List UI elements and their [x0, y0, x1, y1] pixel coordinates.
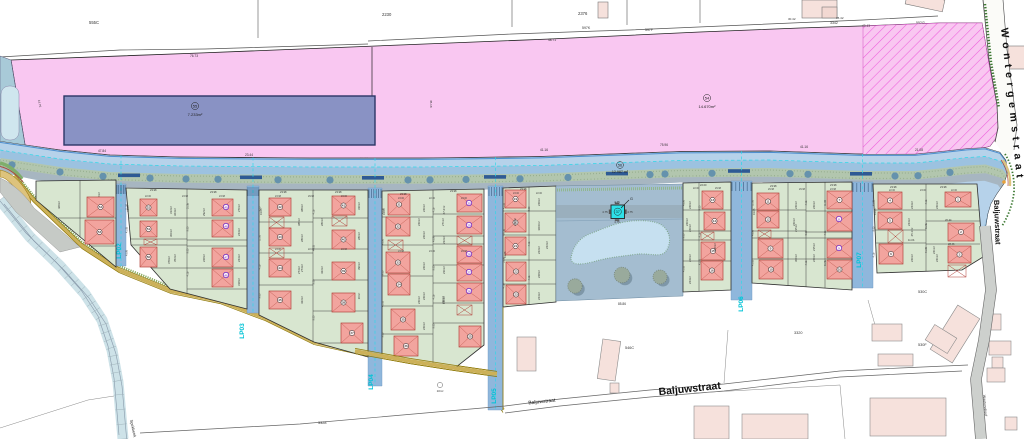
- svg-text:597K: 597K: [582, 26, 591, 30]
- svg-text:390m²: 390m²: [357, 262, 361, 270]
- svg-text:306m²: 306m²: [794, 254, 798, 262]
- svg-text:23.44: 23.44: [245, 153, 253, 157]
- svg-text:40.98: 40.98: [433, 235, 436, 242]
- svg-text:35.42: 35.42: [836, 16, 844, 20]
- svg-text:530C: 530C: [918, 290, 927, 294]
- svg-text:11: 11: [766, 200, 769, 204]
- svg-text:9.00: 9.00: [187, 248, 190, 253]
- svg-text:246m²: 246m²: [812, 254, 816, 262]
- svg-text:LP03: LP03: [239, 323, 246, 339]
- svg-text:19: 19: [514, 197, 518, 201]
- svg-text:41.05: 41.05: [503, 251, 507, 258]
- svg-text:37: 37: [350, 331, 354, 335]
- svg-text:50: 50: [147, 255, 151, 259]
- svg-text:5: 5: [889, 219, 891, 223]
- svg-text:246m²: 246m²: [422, 262, 426, 270]
- svg-text:236m²: 236m²: [442, 266, 446, 274]
- svg-text:4.75: 4.75: [602, 210, 608, 214]
- svg-text:246m²: 246m²: [935, 201, 939, 209]
- svg-text:G: G: [630, 197, 633, 201]
- svg-text:22.00: 22.00: [429, 197, 436, 200]
- svg-text:292m²: 292m²: [202, 208, 206, 216]
- svg-text:52: 52: [147, 206, 151, 210]
- svg-text:23.98: 23.98: [450, 189, 457, 193]
- svg-text:25.1m²: 25.1m²: [910, 228, 914, 237]
- svg-text:6: 6: [890, 252, 892, 256]
- svg-text:23.98: 23.98: [520, 187, 527, 191]
- svg-text:29.98: 29.98: [715, 187, 722, 190]
- svg-text:27.4m²: 27.4m²: [442, 206, 446, 215]
- svg-text:41.05: 41.05: [126, 226, 129, 233]
- svg-text:9.00: 9.00: [313, 315, 316, 320]
- svg-text:433m²: 433m²: [320, 266, 324, 274]
- svg-text:85.86: 85.86: [618, 302, 626, 306]
- svg-text:23: 23: [514, 293, 518, 297]
- svg-text:16: 16: [710, 269, 714, 273]
- svg-text:246m²: 246m²: [812, 201, 816, 209]
- svg-text:43: 43: [278, 235, 282, 239]
- svg-text:23.98: 23.98: [830, 183, 837, 187]
- svg-text:14.670m²: 14.670m²: [699, 104, 717, 109]
- svg-text:30.42: 30.42: [788, 17, 796, 21]
- svg-text:31: 31: [397, 203, 401, 207]
- svg-text:23.98: 23.98: [210, 190, 217, 194]
- svg-text:240m²: 240m²: [685, 218, 689, 226]
- svg-text:41.05: 41.05: [382, 300, 385, 307]
- svg-text:11.00: 11.00: [259, 234, 262, 240]
- svg-text:14: 14: [713, 219, 717, 223]
- svg-text:9.00: 9.00: [873, 226, 876, 231]
- svg-text:49.43: 49.43: [862, 24, 870, 28]
- svg-text:40.98: 40.98: [126, 249, 129, 256]
- svg-text:4.75: 4.75: [614, 200, 620, 204]
- svg-text:364m²: 364m²: [173, 208, 177, 216]
- svg-text:LP07: LP07: [856, 252, 863, 268]
- svg-text:46: 46: [224, 273, 228, 277]
- svg-text:23.00: 23.00: [398, 197, 405, 200]
- svg-text:223m²: 223m²: [537, 246, 541, 254]
- svg-text:246m²: 246m²: [792, 218, 796, 226]
- svg-text:246m²: 246m²: [422, 204, 426, 212]
- svg-text:22.00: 22.00: [889, 189, 896, 192]
- svg-text:29.98: 29.98: [461, 250, 468, 253]
- svg-text:20.44: 20.44: [945, 218, 952, 222]
- svg-text:4.1b: 4.1b: [433, 207, 436, 212]
- svg-text:54: 54: [705, 96, 710, 101]
- svg-text:23.98: 23.98: [400, 192, 407, 196]
- svg-text:23.98: 23.98: [182, 195, 189, 198]
- svg-text:233m²: 233m²: [442, 236, 446, 244]
- svg-text:25: 25: [468, 335, 472, 339]
- svg-text:244m²: 244m²: [910, 201, 914, 209]
- svg-text:220m²: 220m²: [713, 243, 717, 251]
- svg-text:41: 41: [342, 204, 346, 208]
- svg-text:4.1b: 4.1b: [805, 200, 808, 205]
- svg-text:23.98: 23.98: [275, 195, 282, 198]
- svg-text:41.05: 41.05: [873, 199, 876, 206]
- svg-text:32: 32: [396, 225, 400, 229]
- svg-text:38: 38: [342, 301, 346, 305]
- svg-text:4.1b: 4.1b: [699, 232, 702, 237]
- svg-text:29.98: 29.98: [799, 188, 806, 191]
- svg-text:246m²: 246m²: [422, 292, 426, 300]
- svg-text:246m²: 246m²: [794, 201, 798, 209]
- svg-text:22.00: 22.00: [693, 187, 700, 190]
- svg-text:9.00: 9.00: [382, 332, 385, 337]
- svg-text:11.00: 11.00: [824, 199, 827, 205]
- svg-text:286m²: 286m²: [357, 232, 361, 240]
- svg-text:23.98: 23.98: [341, 248, 348, 251]
- svg-text:23.00: 23.00: [341, 195, 348, 198]
- svg-text:23.00: 23.00: [275, 248, 282, 251]
- svg-text:215m²: 215m²: [812, 243, 816, 251]
- svg-text:555C: 555C: [89, 20, 99, 25]
- svg-text:39: 39: [342, 269, 346, 273]
- svg-text:28: 28: [467, 252, 471, 256]
- svg-text:286m²: 286m²: [300, 234, 304, 242]
- svg-text:47: 47: [224, 255, 228, 259]
- svg-text:9.00: 9.00: [382, 270, 385, 275]
- svg-text:330m²: 330m²: [357, 202, 361, 210]
- svg-text:11.00: 11.00: [752, 199, 755, 205]
- svg-text:40.98: 40.98: [752, 229, 755, 236]
- svg-text:31.5b: 31.5b: [824, 259, 827, 266]
- svg-text:4.1b: 4.1b: [528, 241, 531, 246]
- svg-text:37: 37: [616, 210, 620, 214]
- svg-text:40.98: 40.98: [683, 199, 686, 206]
- svg-text:23.98: 23.98: [398, 250, 405, 253]
- svg-text:44: 44: [278, 266, 282, 270]
- svg-text:270m²: 270m²: [237, 204, 241, 212]
- svg-text:23.98: 23.98: [830, 188, 837, 191]
- svg-text:9.00: 9.00: [683, 233, 686, 238]
- svg-text:41.16: 41.16: [800, 145, 808, 149]
- svg-text:228m²: 228m²: [202, 254, 206, 262]
- svg-text:4: 4: [889, 199, 891, 203]
- svg-text:76.73: 76.73: [190, 54, 198, 58]
- svg-text:56: 56: [618, 164, 622, 168]
- svg-text:41.05: 41.05: [752, 208, 756, 215]
- svg-text:4.1b: 4.1b: [313, 209, 316, 214]
- svg-text:26: 26: [467, 289, 471, 293]
- svg-text:LP02: LP02: [116, 243, 123, 259]
- svg-text:241m²: 241m²: [932, 246, 936, 254]
- svg-text:13: 13: [711, 198, 715, 202]
- svg-text:30m²: 30m²: [357, 293, 361, 299]
- svg-text:2: 2: [960, 230, 962, 234]
- svg-text:228m²: 228m²: [537, 270, 541, 278]
- svg-text:33: 33: [396, 261, 400, 265]
- svg-text:48.71: 48.71: [548, 38, 556, 42]
- svg-text:4.1b: 4.1b: [824, 230, 827, 235]
- svg-text:31.5b: 31.5b: [503, 256, 506, 263]
- svg-text:241m²: 241m²: [935, 254, 939, 262]
- svg-text:10m²: 10m²: [437, 389, 444, 393]
- svg-text:23.00: 23.00: [513, 192, 520, 195]
- svg-text:47.84: 47.84: [98, 149, 106, 153]
- svg-text:36: 36: [404, 344, 408, 348]
- svg-text:41.05: 41.05: [873, 208, 877, 215]
- svg-text:27: 27: [467, 270, 471, 274]
- svg-text:4.1b: 4.1b: [259, 264, 262, 269]
- svg-text:42: 42: [278, 205, 282, 209]
- svg-text:246m²: 246m²: [422, 322, 426, 330]
- svg-text:54: 54: [99, 205, 103, 209]
- svg-text:4.1b: 4.1b: [805, 260, 808, 265]
- svg-text:7: 7: [839, 198, 841, 202]
- svg-text:389m²: 389m²: [300, 204, 304, 212]
- svg-text:9.00: 9.00: [699, 205, 702, 210]
- svg-text:246m²: 246m²: [422, 231, 426, 239]
- svg-text:40.98: 40.98: [382, 238, 385, 245]
- svg-text:31.5b: 31.5b: [503, 228, 506, 235]
- svg-text:23.98: 23.98: [219, 195, 226, 198]
- svg-text:49: 49: [224, 205, 228, 209]
- svg-text:469m²: 469m²: [57, 201, 61, 209]
- svg-text:4.1b: 4.1b: [503, 283, 506, 288]
- svg-text:23.00: 23.00: [429, 250, 436, 253]
- svg-text:4.75: 4.75: [614, 220, 620, 224]
- svg-text:9.00: 9.00: [313, 279, 316, 284]
- svg-text:23.98: 23.98: [280, 190, 287, 194]
- svg-text:40.98: 40.98: [382, 207, 385, 214]
- svg-text:41.05: 41.05: [925, 246, 928, 253]
- svg-text:41.05: 41.05: [699, 258, 702, 265]
- svg-text:29.98: 29.98: [768, 188, 775, 191]
- svg-text:LP06: LP06: [738, 296, 745, 312]
- svg-text:353m²: 353m²: [173, 254, 177, 262]
- svg-text:9.00: 9.00: [259, 206, 262, 211]
- svg-text:224m²: 224m²: [688, 276, 692, 284]
- svg-text:22.00: 22.00: [308, 248, 315, 251]
- svg-text:4.1b: 4.1b: [528, 275, 531, 280]
- svg-text:3342: 3342: [830, 21, 838, 25]
- svg-text:21: 21: [514, 244, 518, 248]
- svg-text:244m²: 244m²: [237, 228, 241, 236]
- svg-text:22.00: 22.00: [700, 183, 707, 187]
- svg-text:35: 35: [401, 318, 405, 322]
- svg-text:249m²: 249m²: [513, 218, 517, 226]
- svg-text:246m²: 246m²: [417, 218, 421, 226]
- svg-text:318m²: 318m²: [237, 278, 241, 286]
- svg-text:9: 9: [770, 247, 772, 251]
- svg-text:2376: 2376: [578, 11, 588, 16]
- svg-text:53: 53: [98, 230, 102, 234]
- svg-text:3320: 3320: [794, 331, 802, 335]
- svg-text:546C: 546C: [625, 346, 634, 350]
- svg-text:41.05: 41.05: [752, 259, 755, 266]
- svg-text:41.16: 41.16: [540, 148, 548, 152]
- svg-text:45.18: 45.18: [429, 100, 433, 108]
- svg-text:4.1b: 4.1b: [433, 294, 436, 299]
- svg-text:9.00: 9.00: [259, 293, 262, 298]
- svg-text:51: 51: [147, 227, 151, 231]
- svg-text:10: 10: [769, 268, 773, 272]
- svg-text:4.1b: 4.1b: [187, 271, 190, 276]
- svg-text:246m²: 246m²: [910, 254, 914, 262]
- svg-text:22.00: 22.00: [951, 189, 958, 192]
- svg-text:21.08: 21.08: [915, 148, 923, 152]
- svg-text:1000m²: 1000m²: [537, 221, 541, 231]
- svg-text:1: 1: [957, 198, 959, 202]
- svg-text:LP04: LP04: [368, 374, 375, 390]
- svg-text:9.00: 9.00: [433, 265, 436, 270]
- svg-text:4.1b: 4.1b: [873, 252, 876, 257]
- svg-text:379m²: 379m²: [167, 256, 171, 264]
- svg-text:274m²: 274m²: [297, 266, 301, 274]
- svg-text:41.05: 41.05: [683, 265, 686, 272]
- svg-text:Baljuwstraat: Baljuwstraat: [992, 200, 1003, 245]
- svg-text:23.98: 23.98: [335, 190, 342, 194]
- svg-text:2230: 2230: [382, 12, 392, 17]
- svg-text:271m²: 271m²: [441, 218, 445, 226]
- svg-text:249m²: 249m²: [537, 198, 541, 206]
- svg-text:597F: 597F: [645, 28, 653, 32]
- svg-text:28.46: 28.46: [948, 242, 955, 246]
- svg-text:LP05: LP05: [491, 388, 498, 404]
- svg-text:40: 40: [342, 238, 346, 242]
- svg-text:4.1b: 4.1b: [925, 199, 928, 204]
- svg-text:22: 22: [514, 270, 518, 274]
- svg-text:220m²: 220m²: [688, 254, 692, 262]
- svg-text:9.00: 9.00: [528, 206, 531, 211]
- svg-text:236m²: 236m²: [441, 296, 445, 304]
- svg-text:10: 10: [838, 268, 842, 272]
- svg-text:224m²: 224m²: [537, 292, 541, 300]
- svg-text:3: 3: [959, 253, 961, 257]
- svg-text:55: 55: [193, 104, 198, 109]
- svg-text:240m²: 240m²: [688, 201, 692, 209]
- svg-text:4.75: 4.75: [627, 210, 633, 214]
- svg-text:22.00: 22.00: [145, 195, 152, 198]
- svg-text:29.98: 29.98: [308, 195, 315, 198]
- svg-text:9.00: 9.00: [187, 226, 190, 231]
- svg-text:3328: 3328: [318, 421, 326, 425]
- svg-text:389m²: 389m²: [297, 218, 301, 226]
- svg-text:75.96: 75.96: [660, 143, 668, 147]
- svg-text:30: 30: [467, 201, 471, 205]
- svg-text:244m²: 244m²: [907, 218, 911, 226]
- svg-text:530F: 530F: [918, 343, 927, 347]
- svg-text:23.00: 23.00: [461, 197, 468, 200]
- svg-text:433m²: 433m²: [300, 296, 304, 304]
- svg-text:48: 48: [224, 224, 228, 228]
- svg-text:9.00: 9.00: [805, 230, 808, 235]
- svg-text:31.5b: 31.5b: [925, 222, 928, 229]
- svg-text:246m²: 246m²: [417, 296, 421, 304]
- svg-text:12.987 m²: 12.987 m²: [612, 170, 629, 174]
- svg-text:286m²: 286m²: [320, 218, 324, 226]
- svg-text:45: 45: [278, 298, 282, 302]
- svg-text:7.233m²: 7.233m²: [188, 112, 203, 117]
- svg-text:244m²: 244m²: [237, 254, 241, 262]
- svg-text:31.5b: 31.5b: [187, 202, 190, 209]
- svg-text:23.98: 23.98: [150, 188, 157, 192]
- svg-text:41.05: 41.05: [503, 202, 506, 209]
- svg-text:34: 34: [397, 283, 401, 287]
- svg-text:306m²: 306m²: [169, 229, 173, 237]
- svg-text:11.0b: 11.0b: [908, 238, 915, 242]
- svg-text:11.00: 11.00: [126, 203, 129, 209]
- svg-text:23.00: 23.00: [920, 189, 927, 192]
- svg-text:22.00: 22.00: [536, 192, 543, 195]
- svg-text:12: 12: [766, 218, 770, 222]
- svg-text:29: 29: [467, 223, 471, 227]
- svg-text:223m²: 223m²: [545, 241, 549, 249]
- svg-text:23.98: 23.98: [940, 185, 947, 189]
- svg-text:9.00: 9.00: [433, 323, 436, 328]
